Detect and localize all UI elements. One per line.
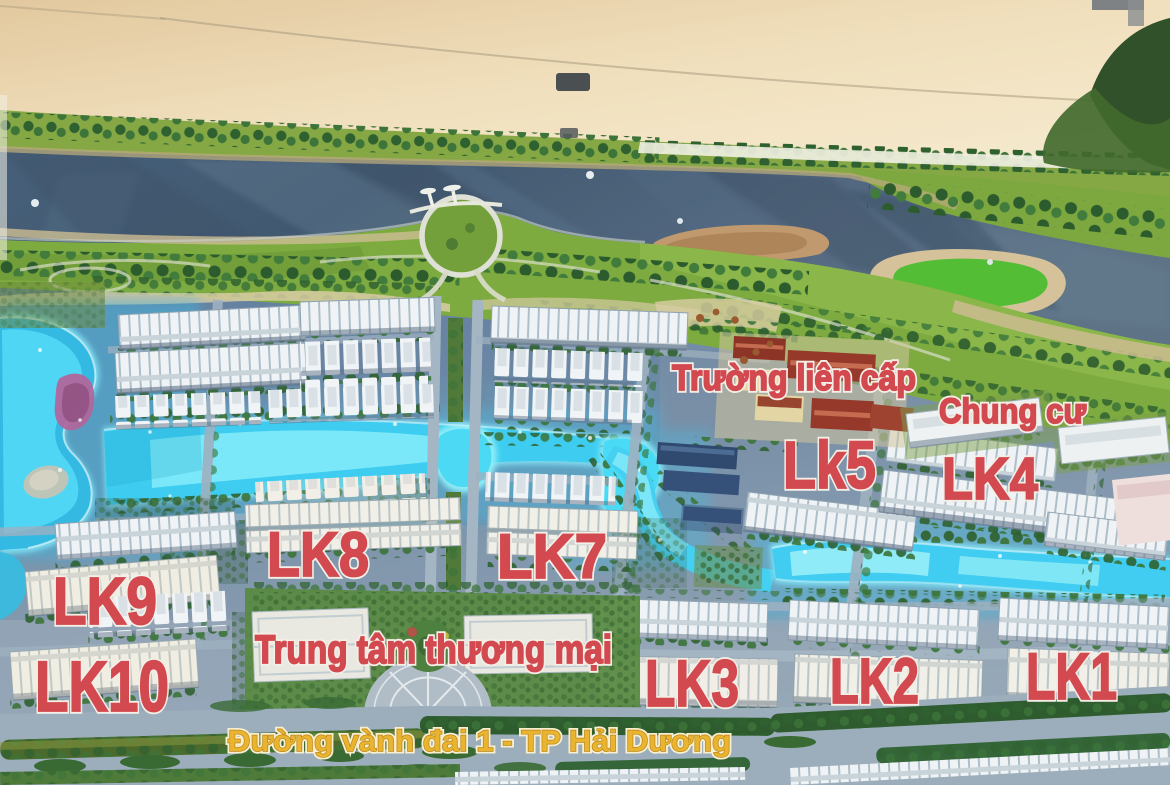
svg-text:Trung tâm thương mại: Trung tâm thương mại: [255, 628, 612, 672]
svg-text:Chung cư: Chung cư: [939, 392, 1087, 431]
svg-text:LK3: LK3: [645, 646, 739, 720]
svg-text:LK9: LK9: [53, 564, 157, 639]
svg-text:LK10: LK10: [35, 648, 169, 727]
svg-text:LK7: LK7: [497, 522, 607, 592]
svg-text:Trường liên cấp: Trường liên cấp: [672, 357, 916, 398]
svg-text:LK8: LK8: [267, 520, 369, 590]
svg-text:Lk5: Lk5: [783, 428, 876, 503]
svg-text:LK4: LK4: [942, 446, 1038, 512]
svg-text:LK2: LK2: [830, 645, 919, 717]
svg-text:Đường vành đai 1 - TP Hải Dư: Đường vành đai 1 - TP Hải Dương: [228, 725, 731, 758]
svg-text:LK1: LK1: [1026, 639, 1117, 713]
